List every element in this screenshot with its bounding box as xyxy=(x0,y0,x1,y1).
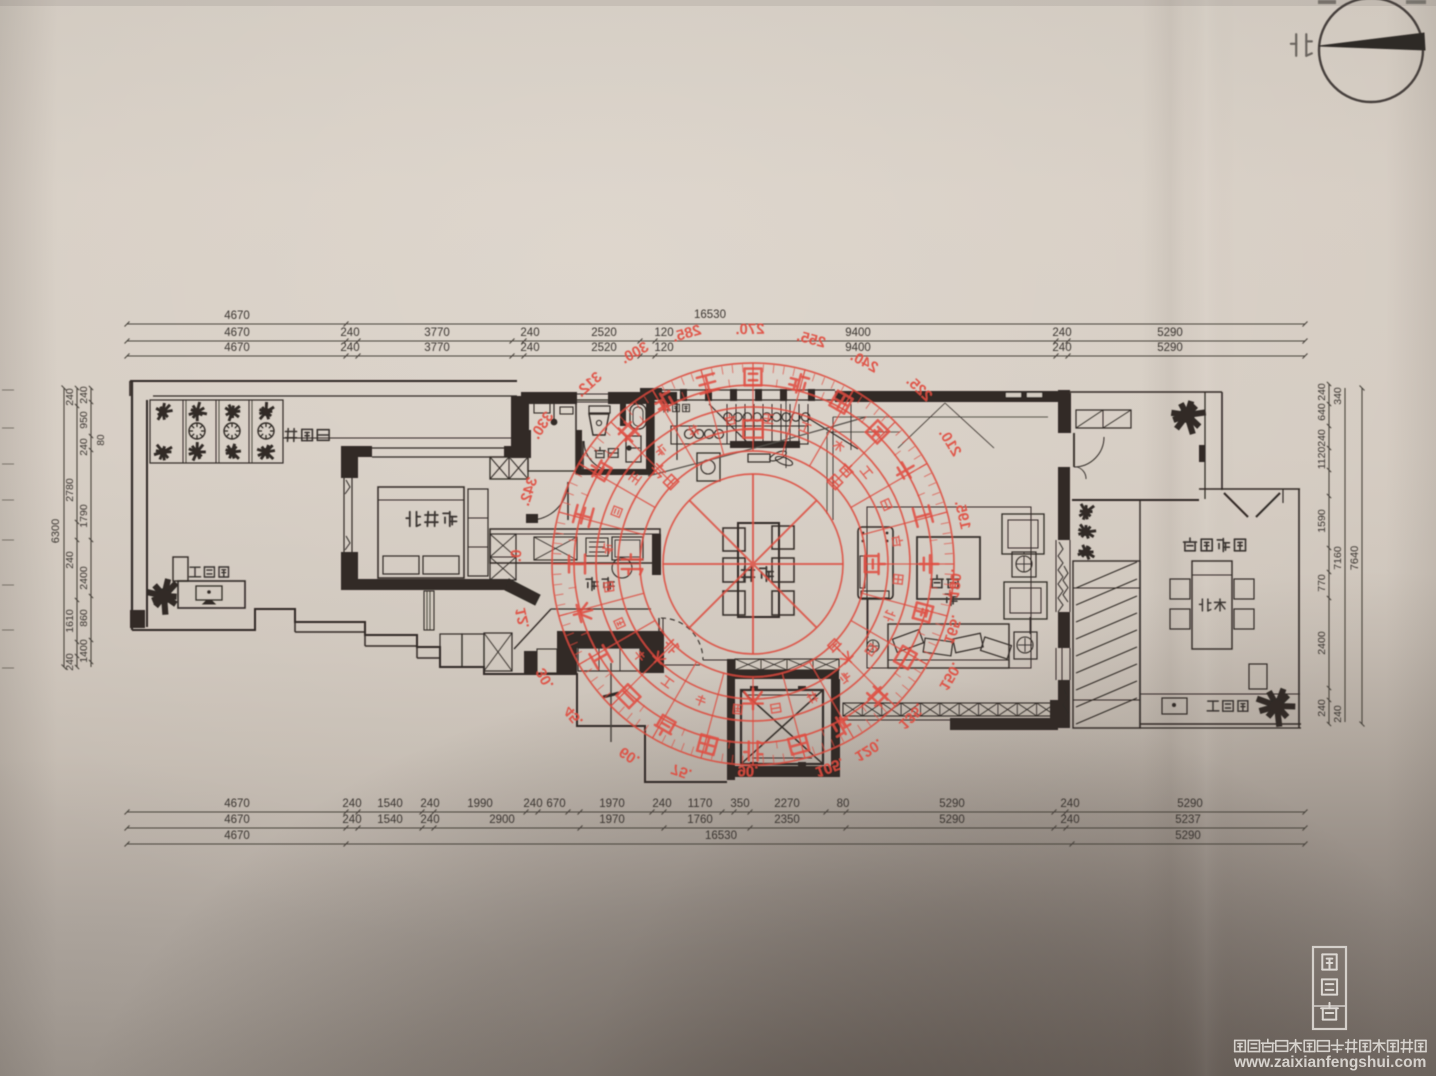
svg-text:5290: 5290 xyxy=(1175,830,1201,842)
svg-text:1120: 1120 xyxy=(1316,447,1328,470)
svg-text:4670: 4670 xyxy=(224,814,250,826)
svg-text:240: 240 xyxy=(1052,342,1071,354)
svg-text:350: 350 xyxy=(730,798,749,810)
svg-text:2350: 2350 xyxy=(774,814,800,826)
svg-text:1970: 1970 xyxy=(599,814,625,826)
svg-text:5290: 5290 xyxy=(939,798,965,810)
svg-text:1540: 1540 xyxy=(377,798,403,810)
svg-text:1990: 1990 xyxy=(467,798,493,810)
svg-text:240: 240 xyxy=(520,327,539,339)
svg-text:4670: 4670 xyxy=(224,327,250,339)
svg-text:240: 240 xyxy=(78,438,90,456)
svg-text:240: 240 xyxy=(520,342,539,354)
svg-text:2270: 2270 xyxy=(774,798,800,810)
svg-text:240: 240 xyxy=(342,814,361,826)
svg-text:950: 950 xyxy=(78,411,90,429)
svg-text:1970: 1970 xyxy=(599,798,625,810)
svg-text:5290: 5290 xyxy=(1157,342,1183,354)
svg-text:1610: 1610 xyxy=(64,609,76,633)
svg-text:2400: 2400 xyxy=(1316,631,1328,655)
svg-text:2520: 2520 xyxy=(591,342,617,354)
svg-text:240: 240 xyxy=(340,327,359,339)
svg-text:240: 240 xyxy=(1052,327,1071,339)
svg-text:240: 240 xyxy=(420,798,439,810)
svg-text:240: 240 xyxy=(1316,383,1328,401)
svg-text:1790: 1790 xyxy=(78,504,90,528)
svg-text:www.zaixianfengshui.com: www.zaixianfengshui.com xyxy=(1233,1054,1426,1071)
svg-text:240: 240 xyxy=(420,814,439,826)
svg-text:240: 240 xyxy=(652,798,671,810)
svg-text:240: 240 xyxy=(64,551,76,569)
svg-text:90.: 90. xyxy=(737,762,758,779)
svg-text:16530: 16530 xyxy=(694,309,726,321)
svg-text:2520: 2520 xyxy=(591,327,617,339)
svg-text:340: 340 xyxy=(1332,387,1344,405)
svg-text:4670: 4670 xyxy=(224,798,250,810)
svg-text:240: 240 xyxy=(64,388,76,406)
svg-text:4670: 4670 xyxy=(224,310,250,322)
svg-text:80: 80 xyxy=(837,798,850,810)
svg-text:3770: 3770 xyxy=(424,342,450,354)
svg-text:1400: 1400 xyxy=(78,639,90,663)
svg-text:240: 240 xyxy=(523,798,542,810)
svg-text:1540: 1540 xyxy=(377,814,403,826)
svg-text:5290: 5290 xyxy=(939,814,965,826)
svg-text:240: 240 xyxy=(342,798,361,810)
svg-text:6300: 6300 xyxy=(50,519,62,543)
svg-text:4670: 4670 xyxy=(224,830,250,842)
svg-text:240: 240 xyxy=(78,386,90,404)
svg-text:5237: 5237 xyxy=(1175,814,1201,826)
svg-text:640: 640 xyxy=(1316,403,1328,421)
svg-text:9400: 9400 xyxy=(845,327,871,339)
svg-text:240: 240 xyxy=(64,653,76,671)
svg-text:240: 240 xyxy=(1316,699,1328,717)
svg-text:16530: 16530 xyxy=(705,830,737,842)
svg-text:80: 80 xyxy=(96,434,107,446)
svg-text:120: 120 xyxy=(654,342,673,354)
svg-text:1590: 1590 xyxy=(1316,509,1328,533)
svg-text:240: 240 xyxy=(1060,798,1079,810)
svg-text:0.: 0. xyxy=(508,549,525,562)
svg-text:1760: 1760 xyxy=(687,814,713,826)
svg-text:240: 240 xyxy=(1332,705,1344,723)
svg-text:240: 240 xyxy=(1060,814,1079,826)
svg-text:2400: 2400 xyxy=(78,566,90,590)
svg-text:2900: 2900 xyxy=(489,814,515,826)
svg-text:240: 240 xyxy=(340,342,359,354)
svg-text:180.: 180. xyxy=(944,568,964,599)
svg-text:1170: 1170 xyxy=(688,798,713,810)
svg-text:240: 240 xyxy=(1316,429,1328,447)
svg-text:7160: 7160 xyxy=(1332,546,1344,570)
svg-text:860: 860 xyxy=(78,609,90,627)
svg-text:770: 770 xyxy=(1316,574,1328,592)
svg-text:5290: 5290 xyxy=(1157,327,1183,339)
svg-text:4670: 4670 xyxy=(224,342,250,354)
svg-text:670: 670 xyxy=(546,798,565,810)
svg-text:2780: 2780 xyxy=(64,478,76,502)
svg-text:3770: 3770 xyxy=(424,327,450,339)
svg-text:5290: 5290 xyxy=(1177,798,1203,810)
svg-text:270.: 270. xyxy=(735,321,764,339)
svg-text:7640: 7640 xyxy=(1349,546,1361,570)
